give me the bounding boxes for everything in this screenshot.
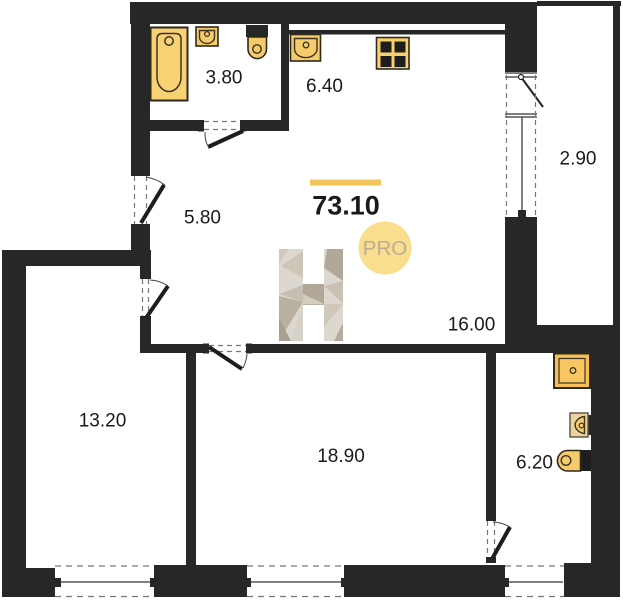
svg-text:5.80: 5.80 (184, 208, 221, 229)
svg-text:3.80: 3.80 (206, 68, 243, 89)
svg-text:18.90: 18.90 (317, 446, 365, 467)
svg-text:PRO: PRO (363, 237, 407, 260)
svg-text:6.20: 6.20 (516, 453, 553, 474)
svg-text:16.00: 16.00 (448, 315, 496, 336)
svg-text:73.10: 73.10 (312, 191, 380, 221)
svg-text:13.20: 13.20 (79, 411, 127, 432)
svg-text:6.40: 6.40 (306, 76, 343, 97)
svg-text:2.90: 2.90 (560, 149, 597, 170)
